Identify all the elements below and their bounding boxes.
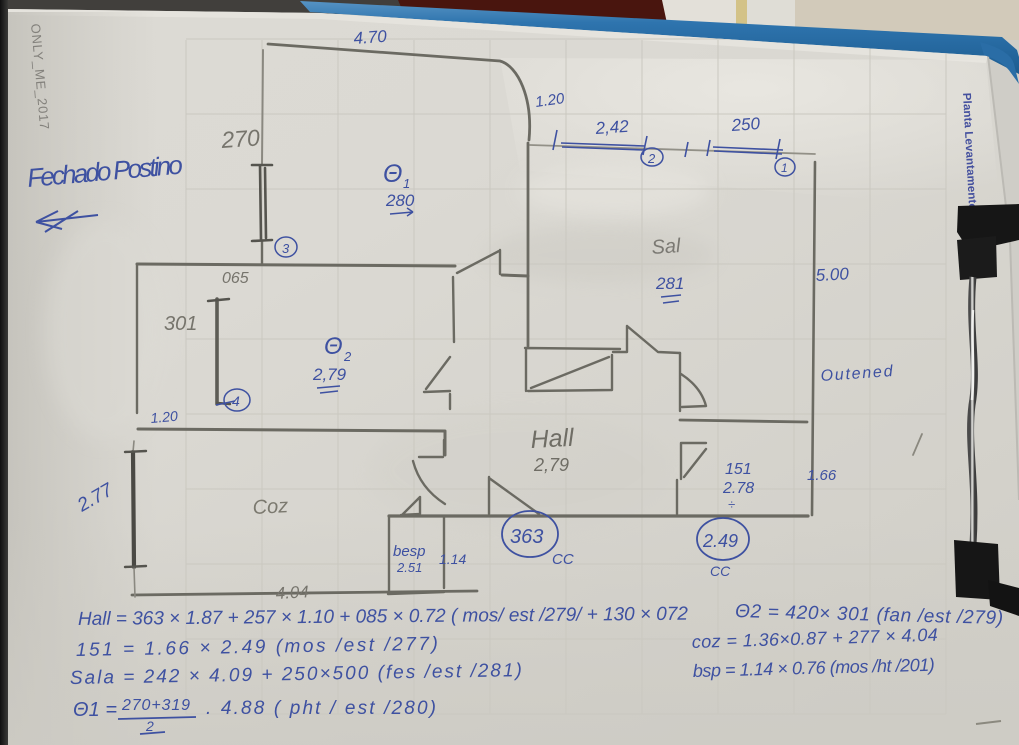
svg-text:2: 2 [343,349,352,364]
svg-text:4.70: 4.70 [353,27,388,48]
svg-text:3: 3 [282,241,290,256]
svg-text:Coz: Coz [252,495,289,519]
svg-text:Θ: Θ [383,160,402,188]
svg-text:Sal: Sal [651,235,682,259]
svg-text:CC: CC [552,551,574,568]
svg-text:besp: besp [393,543,426,560]
svg-text:1: 1 [403,176,410,191]
svg-text:301: 301 [164,313,197,335]
svg-text:Θ1 =: Θ1 = [73,699,117,721]
svg-text:Hall: Hall [530,424,576,454]
svg-text:4.04: 4.04 [275,582,309,603]
svg-text:270+319: 270+319 [121,697,190,714]
svg-text:2.78: 2.78 [722,480,754,497]
svg-text:065: 065 [222,270,249,287]
svg-text:1: 1 [781,161,788,175]
svg-text:2.51: 2.51 [396,560,422,575]
svg-text:281: 281 [655,274,684,293]
svg-text:CC: CC [710,563,731,579]
svg-text:363: 363 [510,526,543,548]
svg-text:2.49: 2.49 [702,531,738,551]
svg-text:2: 2 [647,151,656,166]
svg-text:2,42: 2,42 [594,117,630,138]
svg-text:250: 250 [730,114,761,135]
svg-text:2,79: 2,79 [312,365,347,384]
svg-text:1.14: 1.14 [439,551,466,567]
svg-text:÷: ÷ [728,497,735,512]
svg-text:270: 270 [220,124,261,153]
svg-text:Θ: Θ [324,333,343,360]
svg-text:2: 2 [145,718,154,734]
svg-text:151: 151 [725,461,752,478]
svg-text:1.20: 1.20 [150,408,179,426]
svg-text:280: 280 [385,191,415,210]
svg-text:2,79: 2,79 [533,455,569,475]
svg-text:5.00: 5.00 [815,264,850,285]
svg-text:1.66: 1.66 [807,467,837,484]
